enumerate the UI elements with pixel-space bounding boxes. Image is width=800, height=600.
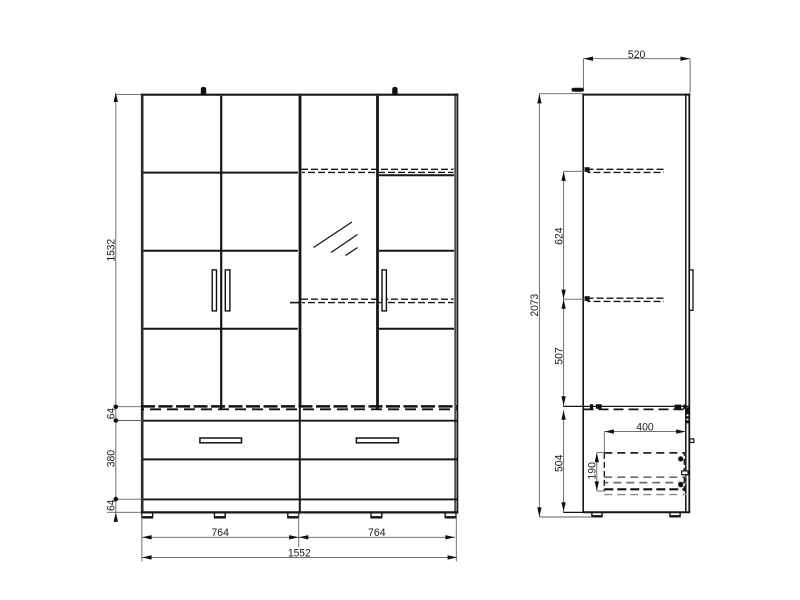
svg-text:507: 507 bbox=[553, 347, 565, 364]
svg-text:380: 380 bbox=[106, 450, 118, 467]
svg-text:520: 520 bbox=[628, 49, 645, 61]
svg-text:64: 64 bbox=[106, 408, 118, 419]
svg-text:1532: 1532 bbox=[106, 239, 118, 262]
svg-text:190: 190 bbox=[586, 462, 598, 479]
svg-text:764: 764 bbox=[368, 527, 385, 539]
svg-text:1552: 1552 bbox=[288, 547, 311, 559]
svg-text:624: 624 bbox=[553, 228, 565, 245]
svg-text:64: 64 bbox=[106, 500, 118, 511]
svg-text:764: 764 bbox=[212, 527, 229, 539]
svg-text:2073: 2073 bbox=[529, 294, 541, 317]
svg-text:504: 504 bbox=[553, 455, 565, 472]
svg-text:400: 400 bbox=[636, 421, 653, 433]
